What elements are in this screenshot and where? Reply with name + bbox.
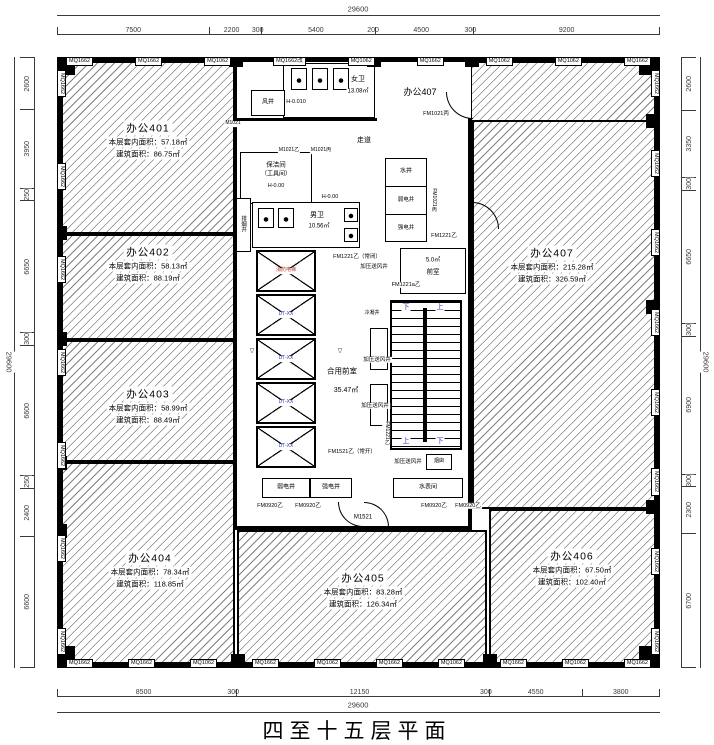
- dim-segment: 6600: [20, 345, 34, 476]
- toilet-stall-icon: [333, 68, 349, 90]
- dim-segment: 9200: [473, 27, 660, 34]
- elevator: DT-XX: [256, 382, 316, 424]
- room-label-406: 办公406本层套内面积：67.50㎡建筑面积：102.40㎡: [531, 549, 614, 588]
- room-label-404: 办公404本层套内面积：78.34㎡建筑面积：118.85㎡: [109, 551, 192, 590]
- window-label: MQ1662: [57, 628, 66, 655]
- door-label: FM1021丙: [429, 188, 437, 211]
- smoke-shaft-label: 排烟井: [239, 216, 247, 233]
- condensate-shaft-label: 冷凝井: [363, 311, 380, 317]
- elevator: DT-XX: [256, 426, 316, 468]
- water-shaft-label: 水井: [399, 169, 413, 176]
- stair-divider: [423, 308, 427, 442]
- corridor-label: 走道: [356, 137, 372, 145]
- window-label: MQ1662: [624, 659, 651, 668]
- stair-up-label: 上: [436, 304, 445, 312]
- male-wc-label: 男卫: [309, 212, 325, 220]
- door-label: FM1221乙: [430, 233, 458, 239]
- window-band-bottom: MQ1662MQ1662MQ1062MQ1662MQ1062MQ1662MQ10…: [66, 659, 651, 668]
- dim-segment: 8500: [57, 689, 229, 696]
- dim-segment: 3950: [20, 109, 34, 188]
- shared-lobby-area: 35.47㎡: [333, 387, 360, 395]
- stair-down-label: 下: [436, 438, 445, 446]
- window-label: MQ1662: [128, 659, 155, 668]
- male-wc-area: 10.56㎡: [307, 224, 330, 231]
- level-marker: ▽: [249, 349, 256, 356]
- front-room-area: 5.0㎡: [425, 258, 441, 265]
- right-total-dim: 29600: [700, 352, 713, 373]
- window-label: MQ1662: [417, 57, 444, 66]
- window-label: MQ1662: [252, 659, 279, 668]
- door-label: FM1021丙: [422, 111, 450, 117]
- stair-down-label: 下: [402, 304, 411, 312]
- left-dim-row: 2600 3950 250 6650 300 6600 250 2400 660…: [20, 57, 35, 668]
- dim-segment: 4500: [375, 27, 466, 34]
- window-label: MQ1662: [66, 57, 93, 66]
- door-label: M1021: [224, 121, 241, 127]
- dim-segment: 6650: [20, 200, 34, 332]
- dim-segment: 2200: [209, 27, 254, 34]
- room-office-407: [472, 120, 656, 509]
- level-marker: ▽: [337, 349, 344, 356]
- bottom-dim-row: 8500 300 12150 300 4550 3800: [57, 684, 660, 697]
- drawing-title: 四至十五层平面: [263, 715, 452, 745]
- wall: [235, 118, 377, 121]
- window-label: MQ1662: [651, 628, 660, 655]
- dim-segment: 300: [682, 177, 696, 190]
- window-label: MQ1662改: [273, 57, 306, 66]
- window-label: MQ1062: [562, 659, 589, 668]
- toilet-stall-icon: [278, 208, 294, 228]
- urinal-icon: [344, 228, 358, 242]
- pressurized-shaft-label: 加压送风井: [393, 459, 423, 465]
- dim-segment: 250: [20, 188, 34, 201]
- dim-segment: 5400: [261, 27, 370, 34]
- window-label: MQ1662: [651, 389, 660, 416]
- dim-segment: 4550: [489, 689, 582, 696]
- dim-segment: 12150: [236, 689, 482, 696]
- fire-elevator: 消防电梯: [256, 250, 316, 292]
- window-label: MQ1062: [486, 57, 513, 66]
- toilet-stall-icon: [312, 68, 328, 90]
- divider: [385, 186, 427, 187]
- door-label: FM0920乙: [256, 503, 284, 509]
- level-label: H-0.010: [285, 99, 307, 105]
- pressurized-shaft-label: 加压送风井: [359, 264, 389, 270]
- top-dim-row: 7500 2200 300 5400 200 4500 300 9200: [57, 22, 660, 35]
- dim-segment: 300: [254, 27, 261, 34]
- cleaning-room-sub: （工具间）: [260, 172, 292, 179]
- window-band-right: MQ1662MQ1662MQ1662MQ1662MQ1662MQ1662MQ16…: [651, 70, 660, 655]
- window-label: MQ1662: [651, 468, 660, 495]
- female-wc-label: 女卫: [350, 76, 366, 84]
- dim-segment: 300: [466, 27, 473, 34]
- level-label: H-0.00: [267, 183, 286, 189]
- door-label: M1021丙: [310, 148, 332, 154]
- top-total-dim-line: [57, 15, 660, 16]
- air-shaft-label: 风井: [261, 100, 275, 107]
- strong-power-shaft-label: 强电井: [321, 485, 341, 492]
- divider: [385, 214, 427, 215]
- window-label: MQ1662: [57, 349, 66, 376]
- level-label: H-0.00: [321, 194, 340, 200]
- window-label: MQ1062: [204, 57, 231, 66]
- toilet-stall-icon: [291, 68, 307, 90]
- floor-plan: 29600 7500 2200 300 5400 200 4500 300 92…: [0, 0, 714, 745]
- female-wc-area: 13.08㎡: [346, 89, 369, 96]
- room-label-403: 办公403本层套内面积：58.99㎡建筑面积：88.49㎡: [107, 387, 190, 426]
- door-label: M1521: [353, 515, 373, 522]
- weak-power-shaft-label: 弱电井: [276, 485, 296, 492]
- window-label: MQ1062: [314, 659, 341, 668]
- door-label: FM1221a乙: [391, 282, 422, 288]
- dim-segment: 2300: [682, 486, 696, 533]
- room-label-407-top: 办公407: [402, 87, 437, 97]
- window-label: MQ1662: [651, 309, 660, 336]
- window-label: MQ1662: [624, 57, 651, 66]
- elevator: DT-XX: [256, 338, 316, 380]
- pressurized-shaft-label: 加压送风井: [362, 357, 392, 363]
- elevator: DT-XX: [256, 294, 316, 336]
- window-label: MQ1062: [190, 659, 217, 668]
- window-label: MQ1062: [348, 57, 375, 66]
- door-label: M1021乙: [278, 148, 300, 154]
- left-total-dim: 29600: [3, 352, 16, 373]
- water-meter-room-label: 水表间: [418, 485, 438, 492]
- dim-segment: 6700: [682, 533, 696, 668]
- dim-segment: 6600: [20, 536, 34, 668]
- window-label: MQ1662: [651, 229, 660, 256]
- chimney-label: 烟囱: [433, 459, 445, 465]
- dim-segment: 6900: [682, 336, 696, 474]
- dim-segment: 300: [682, 474, 696, 487]
- window-label: MQ1662: [57, 535, 66, 562]
- dim-segment: 250: [20, 475, 34, 488]
- dim-segment: 300: [482, 689, 489, 696]
- door-label: FM0920乙: [420, 503, 448, 509]
- bottom-total-dim-line: [57, 712, 660, 713]
- door-label: FM1221乙（常闭）: [332, 254, 382, 260]
- dim-segment: 2600: [20, 57, 34, 109]
- cleaning-room-label: 保洁间: [265, 161, 287, 168]
- window-label: MQ1662: [376, 659, 403, 668]
- window-label: MQ1662: [651, 70, 660, 97]
- bottom-total-dim: 29600: [346, 701, 371, 710]
- window-label: MQ1662: [66, 659, 93, 668]
- right-dim-row: 2600 3350 300 6650 300 6900 300 2300 670…: [681, 57, 696, 668]
- wall: [468, 118, 472, 530]
- room-label-405: 办公405本层套内面积：83.28㎡建筑面积：126.34㎡: [322, 571, 405, 610]
- dim-segment: 2600: [682, 57, 696, 110]
- window-label: MQ1062: [555, 57, 582, 66]
- window-label: MQ1662: [651, 548, 660, 575]
- dim-segment: 3350: [682, 110, 696, 178]
- door-label: FM1521乙（常开）: [327, 449, 377, 455]
- toilet-stall-icon: [258, 208, 274, 228]
- wall: [233, 61, 237, 530]
- window-label: MQ1662: [500, 659, 527, 668]
- pressurized-shaft-box: [370, 328, 388, 370]
- pressurized-shaft-label: 加压送风井: [360, 403, 390, 409]
- dim-segment: 300: [20, 332, 34, 345]
- room-label-407: 办公407本层套内面积：215.28㎡建筑面积：326.59㎡: [509, 246, 596, 285]
- stair-up-label: 上: [402, 438, 411, 446]
- shared-lobby-label: 合用前室: [326, 368, 358, 377]
- dim-segment: 300: [229, 689, 236, 696]
- window-label: MQ1662: [57, 70, 66, 97]
- wall: [235, 526, 472, 530]
- top-total-dim: 29600: [346, 5, 371, 14]
- dim-segment: 6650: [682, 190, 696, 323]
- door-label: FM0920乙: [294, 503, 322, 509]
- weak-power-shaft-label: 弱电井: [397, 197, 416, 203]
- window-band-top: MQ1662MQ1662MQ1062MQ1662改MQ1062MQ1662MQ1…: [66, 57, 651, 66]
- room-label-402: 办公402本层套内面积：58.13㎡建筑面积：88.19㎡: [107, 245, 190, 284]
- window-label: MQ1662: [651, 150, 660, 177]
- window-band-left: MQ1662MQ1662MQ1662MQ1662MQ1662MQ1662MQ16…: [57, 70, 66, 655]
- window-label: MQ1662: [57, 442, 66, 469]
- dim-segment: 300: [682, 323, 696, 336]
- door-label: FM0920乙: [454, 503, 482, 509]
- room-label-401: 办公401本层套内面积：57.18㎡建筑面积：86.75㎡: [107, 121, 190, 160]
- window-label: MQ1062: [438, 659, 465, 668]
- strong-power-shaft-label: 强电井: [397, 225, 416, 231]
- urinal-icon: [344, 208, 358, 222]
- front-room-label: 前室: [426, 268, 441, 275]
- door-label: FM1221乙: [382, 421, 390, 444]
- window-label: MQ1662: [57, 163, 66, 190]
- dim-segment: 2400: [20, 488, 34, 536]
- window-label: MQ1662: [57, 256, 66, 283]
- window-label: MQ1662: [135, 57, 162, 66]
- dim-segment: 3800: [582, 689, 661, 696]
- dim-segment: 7500: [57, 27, 209, 34]
